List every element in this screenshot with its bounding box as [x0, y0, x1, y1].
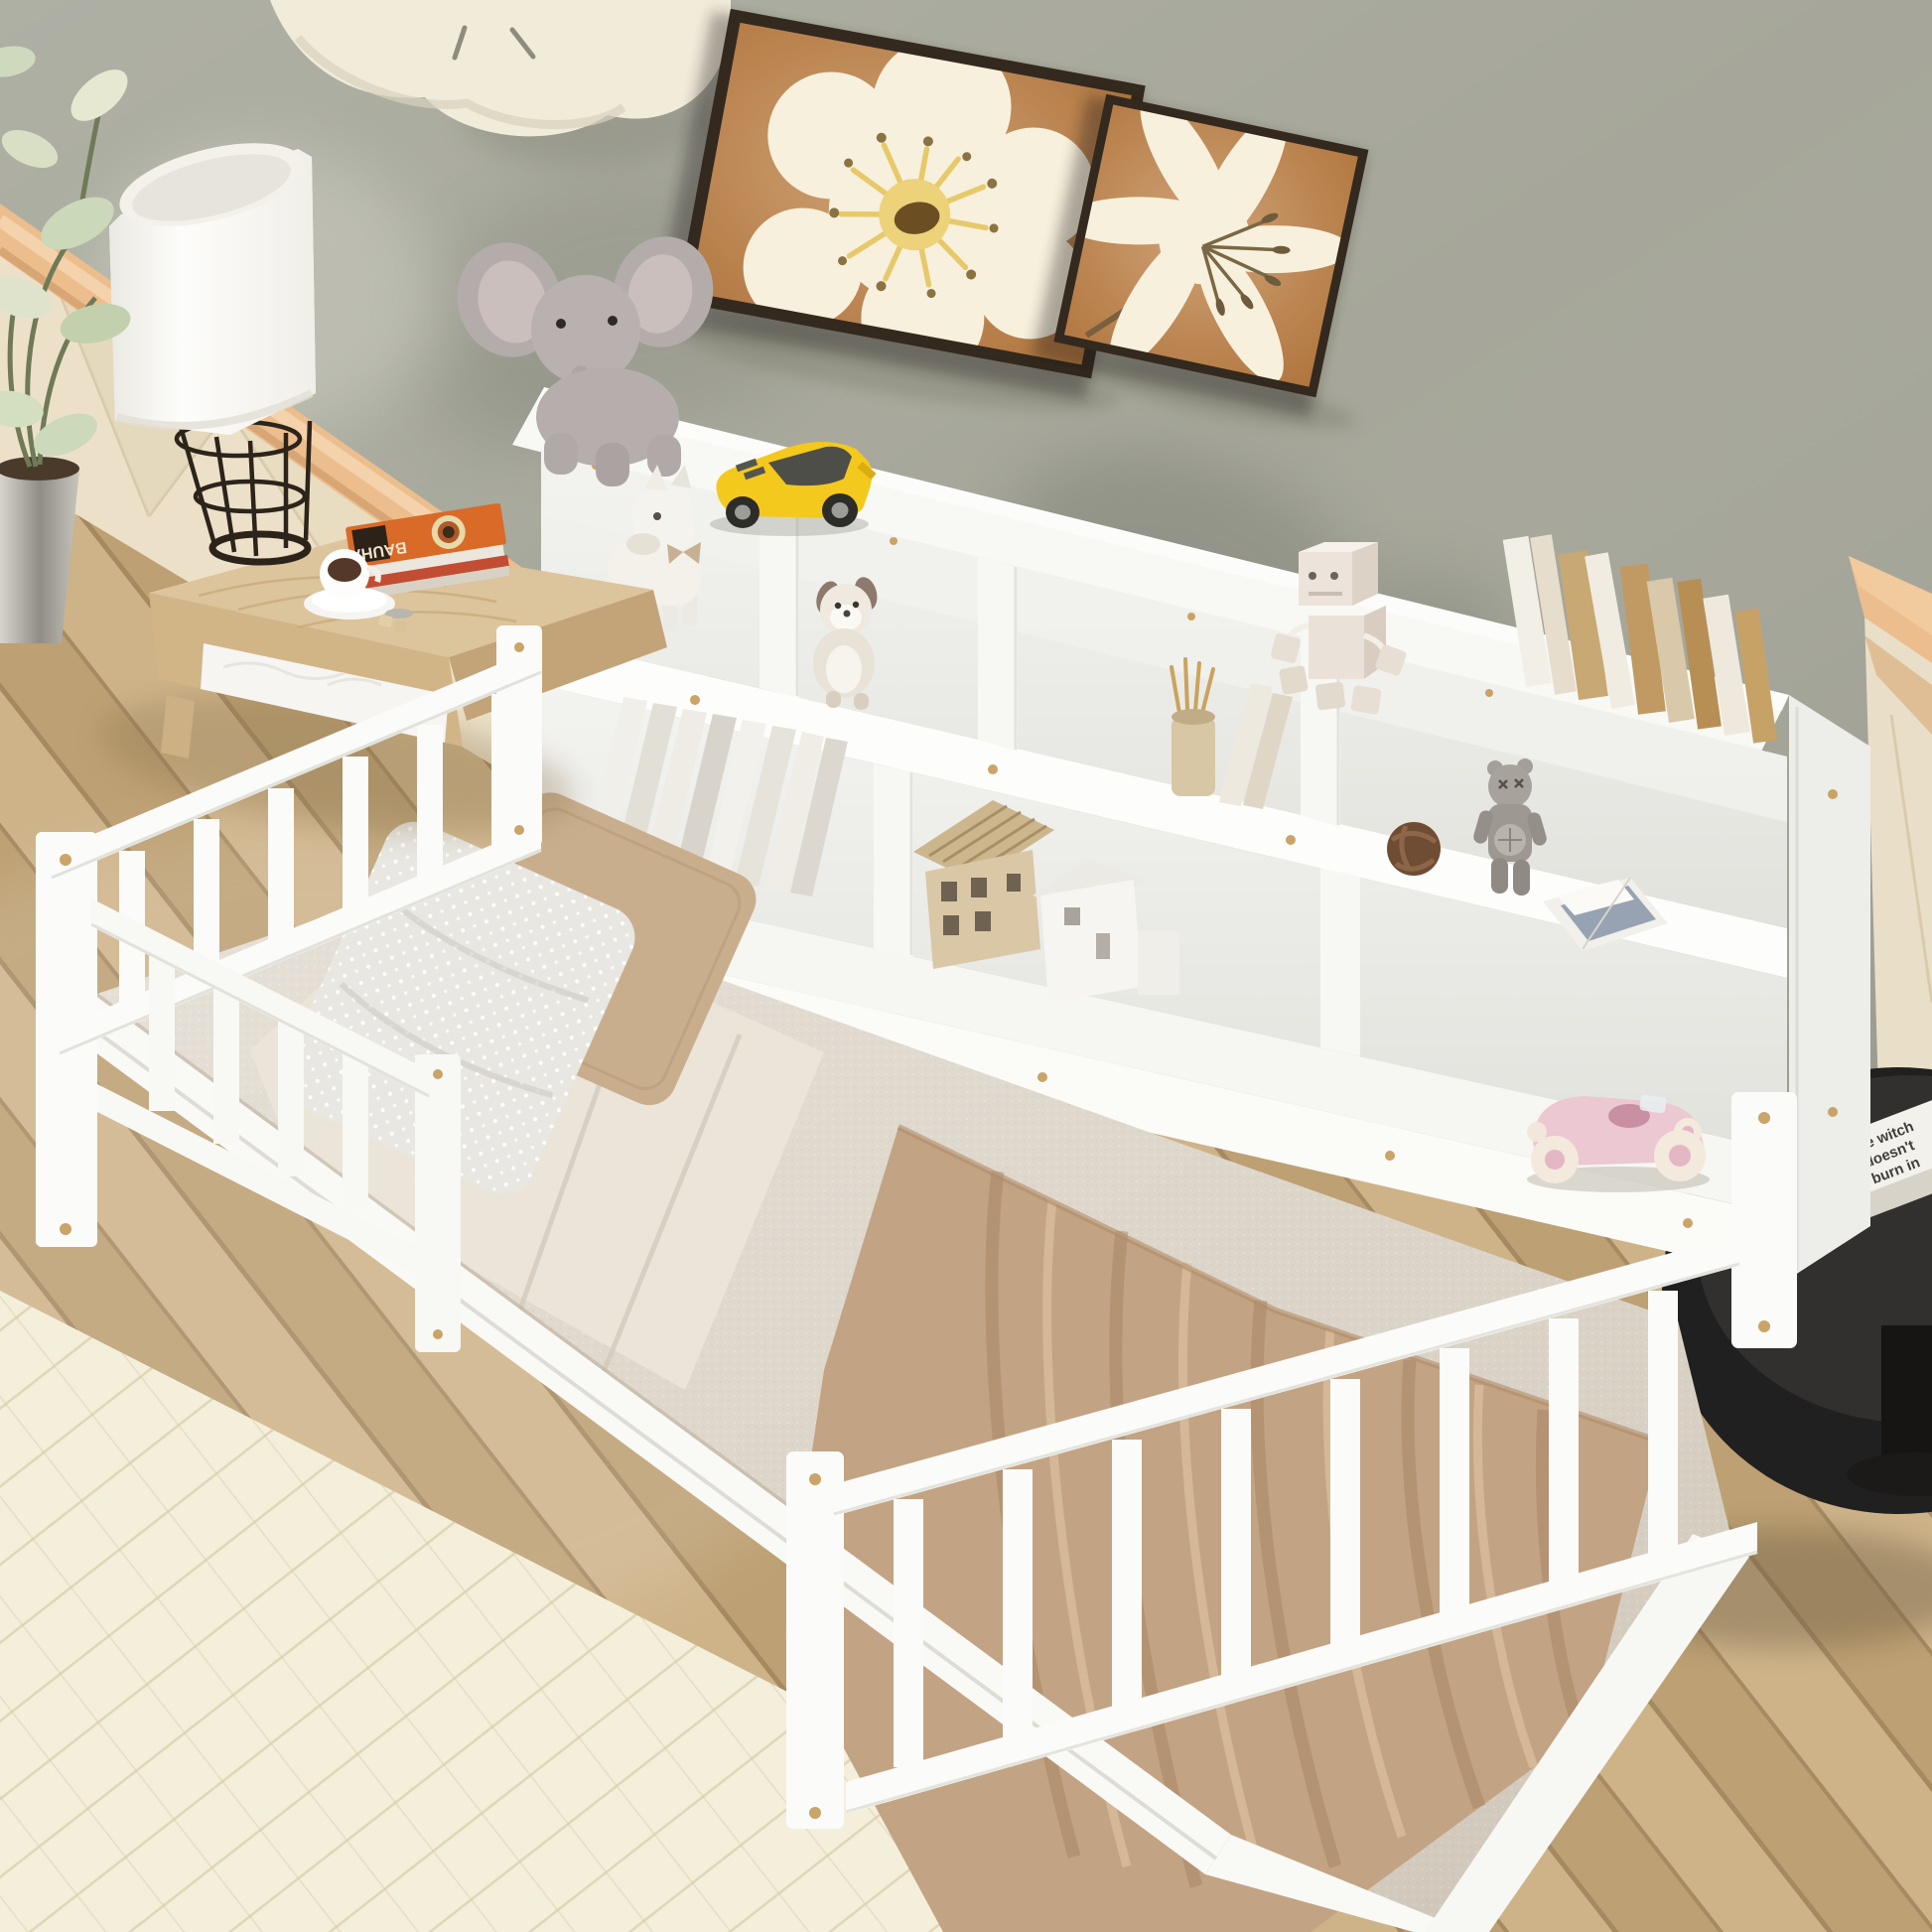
knot-ball — [1387, 822, 1441, 876]
pink-toy-car — [1527, 1094, 1710, 1192]
nightstand-leg — [161, 695, 195, 759]
bookcase-right-panel — [1789, 695, 1870, 1279]
rail-right-post — [1731, 1092, 1797, 1348]
bedroom-scene: the witch doesn't burn in — [0, 0, 1932, 1932]
rail-end-post — [415, 1054, 461, 1352]
